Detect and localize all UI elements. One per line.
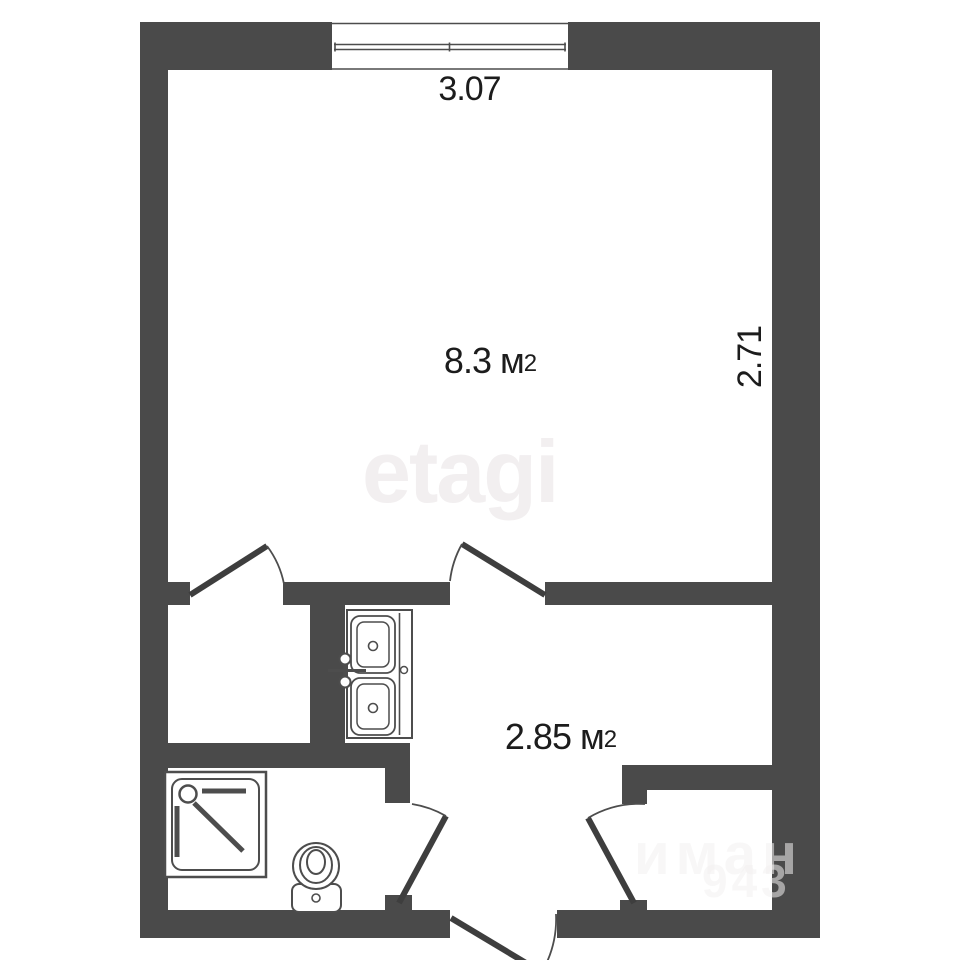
wall-niche-door-jamb-top	[622, 790, 647, 804]
door-swing-bathroom	[399, 804, 446, 903]
wall-left	[140, 22, 168, 938]
shower-tray	[165, 772, 266, 877]
door-swing-main-to-leftroom	[190, 546, 284, 595]
watermark-corner-line2: 943	[702, 858, 791, 904]
dimension-right-text: 2.71	[731, 326, 770, 388]
area-value: 2.85	[505, 716, 571, 758]
wall-niche-top	[622, 765, 772, 790]
wall-middle-center	[283, 582, 450, 605]
door-swing-entrance	[451, 914, 556, 960]
wall-top	[140, 22, 820, 70]
area-label-hallway: 2.85 м 2	[488, 716, 633, 758]
dimension-top: 3.07	[382, 70, 557, 109]
area-unit: м	[500, 340, 524, 382]
area-label-main-room: 8.3 м 2	[420, 340, 560, 382]
toilet	[292, 843, 341, 912]
wall-bathroom-door-jamb-bottom	[385, 895, 412, 910]
wall-middle-left-stub	[140, 582, 190, 605]
wall-right	[772, 22, 820, 938]
watermark-etagi: etagi	[362, 428, 557, 516]
wall-leftroom-right	[310, 605, 345, 743]
wall-bathroom-door-jamb-top	[385, 768, 410, 803]
wall-bottom-right	[557, 910, 820, 938]
area-value: 8.3	[444, 340, 491, 382]
door-swing-main-to-hallway	[450, 544, 545, 595]
wall-bottom-left	[140, 910, 450, 938]
area-unit: м	[580, 716, 604, 758]
floor-plan: 3.07 2.71 8.3 м 2 2.85 м 2 etagi иман 94…	[0, 0, 960, 960]
wall-niche-door-jamb-bottom	[620, 900, 647, 910]
dimension-right: 2.71	[706, 313, 794, 401]
wall-middle-right	[545, 582, 772, 605]
wall-bathroom-top	[140, 743, 410, 768]
